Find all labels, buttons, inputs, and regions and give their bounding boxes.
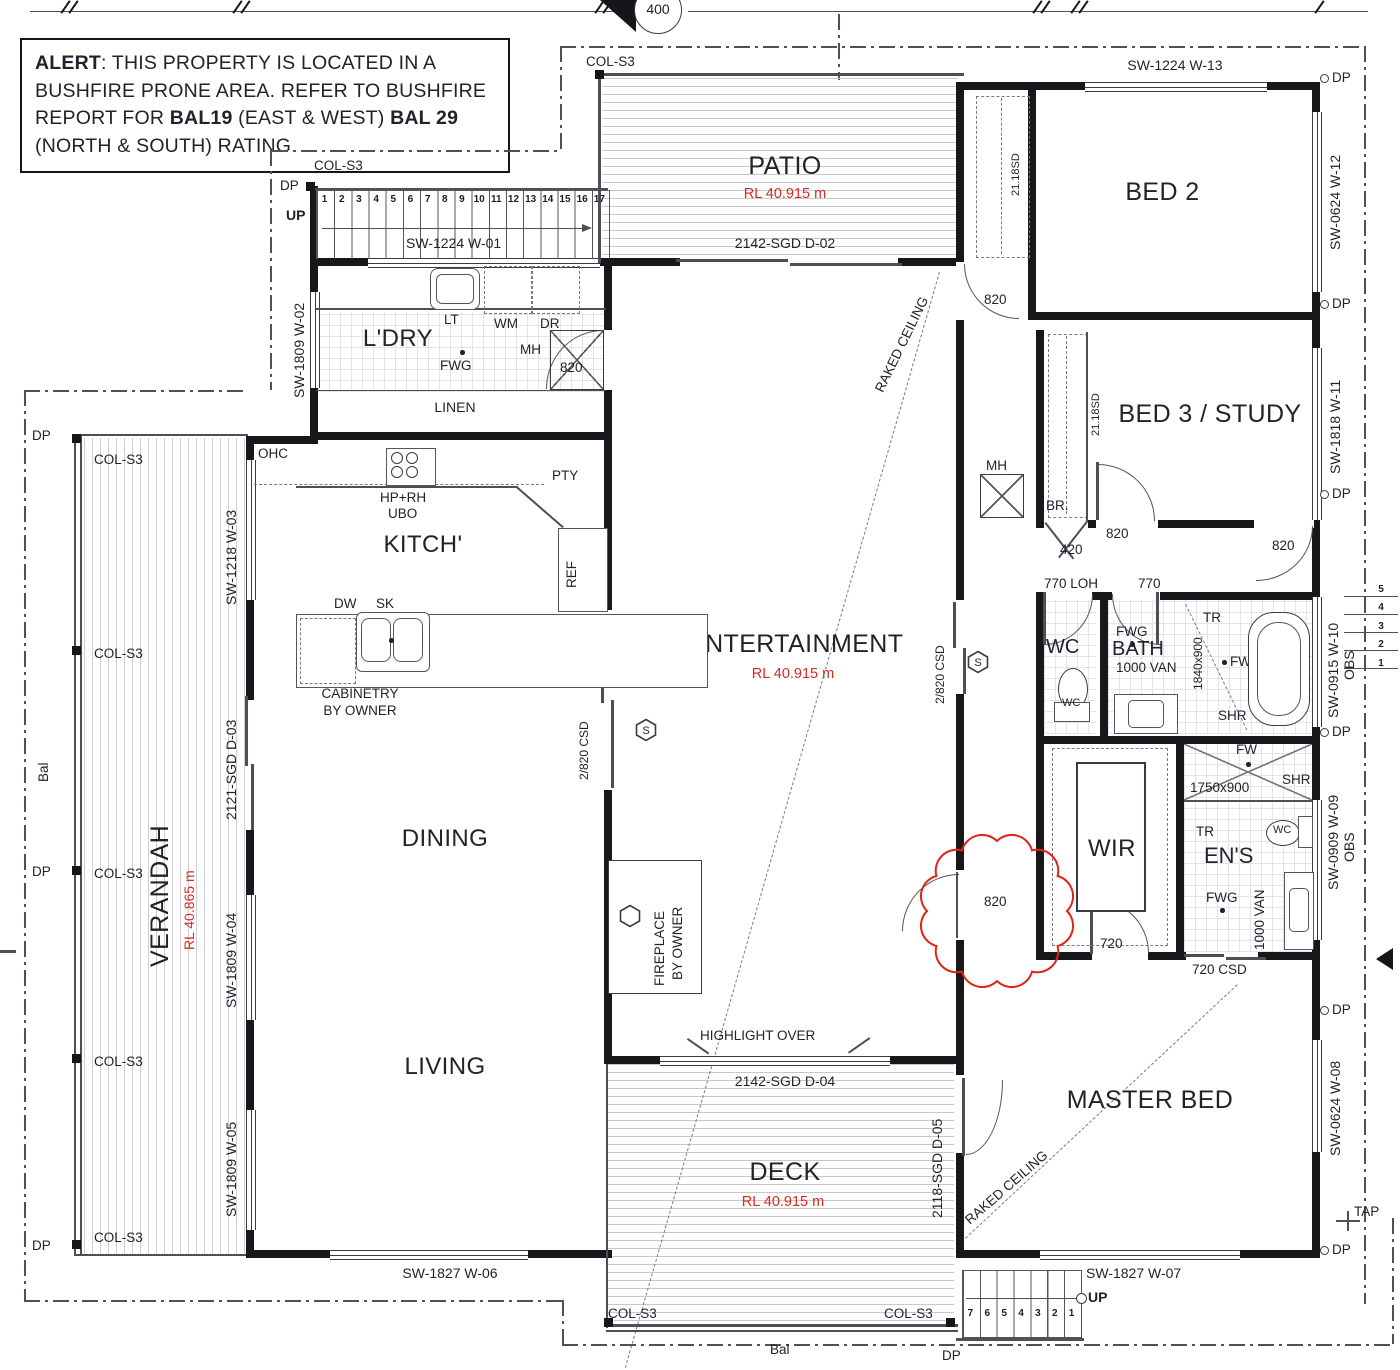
deck-edge [606, 1064, 608, 1328]
smoke-detector-icon: S [634, 718, 658, 742]
toilet-label: WC [1062, 697, 1080, 709]
stair-number: 4 [368, 194, 385, 208]
alert-bold: ALERT [35, 52, 101, 74]
level-label-ent: RL 40.915 m [738, 666, 848, 682]
room-label-deck: DECK [730, 1158, 840, 1186]
stair-number: 1 [1063, 1308, 1080, 1322]
column-label: COL-S3 [608, 1306, 657, 1321]
dryer-label: DR [540, 316, 560, 331]
window-label-w10: SW-0915 W-10 [1326, 608, 1342, 718]
stair-up-label: UP [1088, 1290, 1107, 1306]
bench-edge [516, 486, 564, 528]
stair-arrow-origin [1076, 1293, 1087, 1304]
robe [1048, 334, 1088, 518]
downpipe-label: DP [280, 178, 299, 193]
verandah-post [72, 1240, 81, 1249]
wall [310, 432, 612, 440]
window-w05 [246, 1110, 256, 1230]
door-label-820: 820 [560, 360, 583, 375]
stair-number: 4 [1013, 1308, 1030, 1322]
cavity-slider-panel [1184, 954, 1224, 957]
room-label-bath: BATH [1112, 638, 1164, 660]
column-label: COL-S3 [884, 1306, 933, 1321]
stair-number: 5 [385, 194, 402, 208]
window-label-w01: SW-1224 W-01 [406, 236, 501, 252]
stair-number: 14 [539, 194, 556, 208]
level-label-verandah: RL 40.865 m [182, 800, 198, 950]
alert-bal29: BAL 29 [390, 107, 458, 129]
detail-marker-bubble: 400 [634, 0, 682, 34]
manhole-label: MH [520, 342, 541, 357]
dishwasher [300, 618, 356, 684]
vanity-basin [1128, 700, 1164, 728]
window-label-w03: SW-1218 W-03 [224, 505, 240, 605]
door-opening-720 [1092, 952, 1148, 960]
verandah-post [72, 1054, 81, 1063]
post [306, 182, 315, 191]
highlight-arrow [848, 1037, 870, 1053]
window-label-w06: SW-1827 W-06 [370, 1266, 530, 1282]
cavity-slider-panel [611, 700, 614, 788]
stair-edge [956, 1338, 1084, 1341]
tap-symbol [1347, 1211, 1349, 1231]
deck-edge [606, 1324, 958, 1327]
alert-bal19: BAL19 [170, 107, 233, 129]
sink-tap [389, 638, 394, 643]
door-label-820: 820 [984, 292, 1007, 307]
pantry-label: PTY [552, 468, 578, 483]
door-label-d03: 2121-SGD D-03 [224, 718, 240, 820]
fireplace-label: BY OWNER [670, 874, 685, 980]
downpipe-label: DP [942, 1348, 961, 1363]
window-w07 [1040, 1250, 1240, 1260]
stair-number: 5 [996, 1308, 1013, 1322]
downpipe-label: DP [1332, 724, 1351, 739]
boundary-line [272, 150, 562, 152]
room-label-patio: PATIO [705, 152, 865, 180]
stair-numbers-top: 1234567891011121314151617 [316, 194, 608, 208]
door-label-820: 820 [1272, 538, 1295, 553]
verandah-edge [74, 434, 248, 436]
alert-text: (NORTH & SOUTH) RATING [35, 135, 291, 157]
verandah-rail [80, 436, 82, 1256]
fireplace-label: FIREPLACE [652, 868, 667, 986]
linen-front [316, 390, 606, 391]
downpipe-label: DP [1332, 70, 1351, 85]
window-w13 [1085, 82, 1267, 92]
patio-edge [598, 73, 964, 76]
verandah-post [72, 646, 81, 655]
column-label: COL-S3 [94, 1054, 143, 1069]
stair-number: 16 [574, 194, 591, 208]
boundary-line [24, 390, 246, 392]
boundary-line [24, 1300, 564, 1302]
tap-label: TAP [1354, 1204, 1379, 1219]
boundary-line [270, 150, 272, 390]
vanity-label: 1000 VAN [1116, 660, 1177, 675]
stair-number: 13 [522, 194, 539, 208]
downpipe-dot [1320, 1246, 1329, 1255]
shower-size-label: 1840x900 [1192, 626, 1205, 690]
verandah-post [72, 866, 81, 875]
stair-number: 8 [436, 194, 453, 208]
stair-treads [962, 1270, 1082, 1338]
post [604, 1318, 613, 1327]
door-label-d05: 2118-SGD D-05 [930, 1100, 946, 1218]
window-w10 [1312, 597, 1322, 727]
vanity-label: 1000 VAN [1252, 880, 1267, 950]
room-label-living: LIVING [370, 1054, 520, 1081]
door-label-720csd: 720 CSD [1192, 962, 1247, 977]
room-label-kitch: KITCH' [368, 532, 478, 559]
room-label-ldry: L'DRY [348, 326, 448, 353]
sink-bowl [361, 618, 391, 662]
room-label-ent: ENTERTAINMENT [688, 630, 898, 658]
door-label-420: 420 [1060, 542, 1083, 557]
door-label-820: 820 [984, 894, 1007, 909]
toilet-cistern [1298, 816, 1313, 848]
flue-icon [618, 904, 642, 928]
door-label-d04: 2142-SGD D-04 [700, 1074, 870, 1090]
door-leaf [1156, 592, 1159, 644]
boundary-line [560, 46, 1366, 48]
sliding-door-panel [790, 263, 902, 266]
deck-edge [606, 1330, 958, 1332]
sink-bowl [393, 618, 423, 662]
shower-screen [1184, 800, 1312, 802]
manhole-label: MH [986, 458, 1007, 473]
oven-label: UBO [388, 506, 417, 521]
window-label-w02: SW-1809 W-02 [292, 298, 308, 398]
grid-line [838, 14, 840, 80]
fwg-label: FWG [1116, 624, 1148, 639]
room-label-verandah: VERANDAH [146, 782, 174, 967]
towel-rail-label: TR [1203, 610, 1221, 625]
room-label-wir: WIR [1088, 836, 1136, 863]
towel-rail-label: TR [1196, 824, 1214, 839]
stair-number: 2 [333, 194, 350, 208]
room-label-bed2: BED 2 [1080, 178, 1245, 206]
sliding-door-panel [245, 696, 248, 766]
column-label: COL-S3 [586, 54, 635, 69]
ohc-label: OHC [258, 446, 288, 461]
linen-label: LINEN [400, 400, 510, 416]
detail-marker-value: 400 [646, 2, 669, 18]
vanity-basin [1289, 888, 1309, 932]
downpipe-label: DP [1332, 1242, 1351, 1257]
door-leaf [962, 1078, 965, 1156]
post [595, 70, 604, 79]
column-label: COL-S3 [94, 866, 143, 881]
verandah-edge [74, 1254, 248, 1256]
door-opening-820 [604, 330, 612, 390]
washer-label: WM [494, 316, 518, 331]
door-swing [1098, 464, 1155, 521]
window-label-w04: SW-1809 W-04 [224, 908, 240, 1008]
wall [1028, 312, 1320, 320]
wall [1036, 330, 1044, 528]
verandah-post [72, 434, 81, 443]
boundary-line [1392, 1218, 1394, 1344]
stair-number: 6 [402, 194, 419, 208]
window-label-w11: SW-1818 W-11 [1328, 370, 1344, 474]
stair-arrow-head [582, 224, 592, 232]
door-opening-820 [956, 262, 964, 320]
wall [1100, 592, 1108, 744]
dimension-line [30, 11, 634, 12]
window-obscure-label: OBS [1342, 640, 1358, 680]
fwg-dot [1220, 908, 1225, 913]
patio-edge [598, 73, 601, 263]
stair-number: 7 [419, 194, 436, 208]
stair-number: 7 [962, 1308, 979, 1322]
door-label-820: 820 [1106, 526, 1129, 541]
room-label-wc: WC [1046, 636, 1079, 658]
hotplate-label: HP+RH [380, 490, 426, 505]
downpipe-dot [1320, 728, 1329, 737]
window-obscure-label: OBS [1342, 822, 1358, 862]
stair-number: 6 [979, 1308, 996, 1322]
boundary-line [562, 1300, 564, 1346]
stair-up-label: UP [286, 208, 305, 224]
downpipe-label: DP [32, 1238, 51, 1253]
fwg-label: FWG [1206, 890, 1238, 905]
cooktop-burner [391, 452, 403, 464]
dimension-line [688, 11, 1368, 12]
window-label-w09: SW-0909 W-09 [1326, 790, 1342, 890]
cooktop-burner [406, 466, 418, 478]
highlight-window [660, 1056, 890, 1066]
window-label-w08: SW-0624 W-08 [1328, 1054, 1344, 1156]
cabinetry-note: BY OWNER [300, 703, 420, 718]
robe-slider-line [1001, 98, 1002, 254]
room-label-dining: DINING [370, 826, 520, 853]
stair-number: 15 [556, 194, 573, 208]
stair-number: 3 [1372, 621, 1390, 639]
verandah-rail [74, 436, 76, 1256]
window-w08 [1312, 1040, 1322, 1152]
smoke-detector-icon: S [966, 650, 990, 674]
stair-numbers-right: 54321 [1372, 584, 1390, 676]
laundry-trough-bowl [436, 274, 474, 304]
window-w03 [246, 460, 256, 600]
stair-number: 3 [350, 194, 367, 208]
column-label: COL-S3 [94, 1230, 143, 1245]
alert-text: (EAST & WEST) [233, 107, 391, 129]
window-label-w13: SW-1224 W-13 [1090, 58, 1260, 74]
floor-waste-dot [1222, 660, 1227, 665]
downpipe-label: DP [1332, 1002, 1351, 1017]
stair-number: 2 [1046, 1308, 1063, 1322]
boundary-line [562, 1344, 1394, 1346]
window-w02 [310, 292, 320, 388]
boundary-line [24, 390, 26, 1302]
bench-edge [296, 486, 518, 488]
stair-number: 2 [1372, 639, 1390, 657]
door-label-csd: 2/820 CSD [578, 688, 591, 780]
door-label-csd: 2/820 CSD [934, 612, 947, 704]
stair-numbers-bottom: 7654321 [962, 1308, 1080, 1322]
boundary-line [1364, 46, 1366, 1304]
edge-arrow-marker [1376, 948, 1393, 970]
robe-door-label: 21.18SD [1010, 134, 1022, 196]
downpipe-dot [1320, 300, 1329, 309]
window-w12 [1312, 112, 1322, 292]
svg-text:S: S [642, 725, 649, 737]
robe-door-label: 21.18SD [1090, 376, 1102, 436]
window-label-w05: SW-1809 W-05 [224, 1121, 240, 1217]
floor-waste-label: FW [1236, 742, 1257, 757]
window-label-w12: SW-0624 W-12 [1328, 146, 1344, 250]
boundary-line [560, 46, 562, 152]
cooktop-burner [391, 466, 403, 478]
level-label-patio: RL 40.915 m [705, 186, 865, 202]
cavity-slider-panel [953, 602, 956, 648]
revision-cloud [912, 826, 1082, 996]
shower-label: SHR [1282, 772, 1311, 787]
room-label-br: BR. [1046, 498, 1069, 513]
door-swing [1256, 526, 1313, 581]
wall [1176, 736, 1184, 960]
shower-size-label: 1750x900 [1190, 780, 1249, 795]
stair-number: 5 [1372, 584, 1390, 602]
level-label-deck: RL 40.915 m [718, 1194, 848, 1210]
stair-arrow-line [966, 1298, 1076, 1299]
washing-machine-space [484, 266, 532, 314]
door-label-d02: 2142-SGD D-02 [700, 236, 870, 252]
column-label: COL-S3 [94, 646, 143, 661]
downpipe-dot [1320, 74, 1329, 83]
door-label-720: 720 [1100, 936, 1123, 951]
bathtub-inner [1257, 622, 1301, 716]
sliding-door-panel [676, 259, 788, 262]
room-label-master: MASTER BED [1040, 1086, 1260, 1114]
stair-arrow-line [322, 228, 584, 229]
sliding-door-panel [251, 764, 254, 830]
stair-number: 1 [316, 194, 333, 208]
post [946, 1318, 955, 1327]
stair-number: 3 [1029, 1308, 1046, 1322]
fwg-dot [460, 350, 465, 355]
cabinetry-note: CABINETRY [300, 686, 420, 701]
balance-label: Bal [770, 1342, 790, 1357]
svg-text:S: S [974, 657, 981, 669]
section-marker-flag [600, 0, 636, 32]
window-w04 [246, 895, 256, 1020]
stair-number: 9 [453, 194, 470, 208]
window-w06 [330, 1250, 528, 1260]
downpipe-label: DP [1332, 486, 1351, 501]
cavity-slider-panel [1226, 957, 1266, 960]
dim-label-770loh: 770 LOH [1044, 576, 1098, 591]
bushfire-alert-note: ALERT: THIS PROPERTY IS LOCATED IN A BUS… [20, 38, 510, 173]
door-swing-d05 [966, 1080, 1003, 1155]
downpipe-label: DP [32, 864, 51, 879]
fwg-label: FWG [440, 358, 472, 373]
fwg-dot [1130, 642, 1135, 647]
downpipe-dot [1320, 490, 1329, 499]
door-leaf [1096, 462, 1099, 520]
dim-label-770: 770 [1138, 576, 1161, 591]
room-label-bed3: BED 3 / STUDY [1110, 400, 1310, 428]
robe-front [1086, 332, 1088, 522]
wall [246, 436, 318, 444]
column-label: COL-S3 [314, 158, 363, 173]
fridge-label: REF [564, 548, 579, 588]
floor-waste-dot [1246, 762, 1251, 767]
stair-number: 4 [1372, 602, 1390, 620]
manhole-box [980, 474, 1024, 518]
window-label-w07: SW-1827 W-07 [1086, 1266, 1181, 1282]
downpipe-label: DP [32, 428, 51, 443]
downpipe-label: DP [1332, 296, 1351, 311]
stair-number: 12 [505, 194, 522, 208]
column-label: COL-S3 [94, 452, 143, 467]
stair-number: 10 [471, 194, 488, 208]
downpipe-dot [1320, 1006, 1329, 1015]
trough-label: LT [444, 312, 459, 327]
stair-number: 1 [1372, 658, 1390, 676]
stair-number: 11 [488, 194, 505, 208]
floor-plan: 400 ALERT: THIS PROPERTY IS LOCATED IN A… [0, 0, 1400, 1370]
highlight-over-label: HIGHLIGHT OVER [700, 1028, 815, 1043]
toilet-label: WC [1273, 824, 1291, 836]
raked-ceiling-label: RAKED CEILING [872, 271, 943, 394]
room-label-ens: EN'S [1204, 844, 1253, 869]
cooktop-burner [406, 452, 418, 464]
edge-marker [0, 950, 16, 953]
balance-label: Bal [36, 742, 51, 782]
dryer-space [532, 266, 580, 314]
sink-label: SK [376, 596, 394, 611]
robe-slider-line [1066, 336, 1067, 514]
dishwasher-label: DW [334, 596, 357, 611]
